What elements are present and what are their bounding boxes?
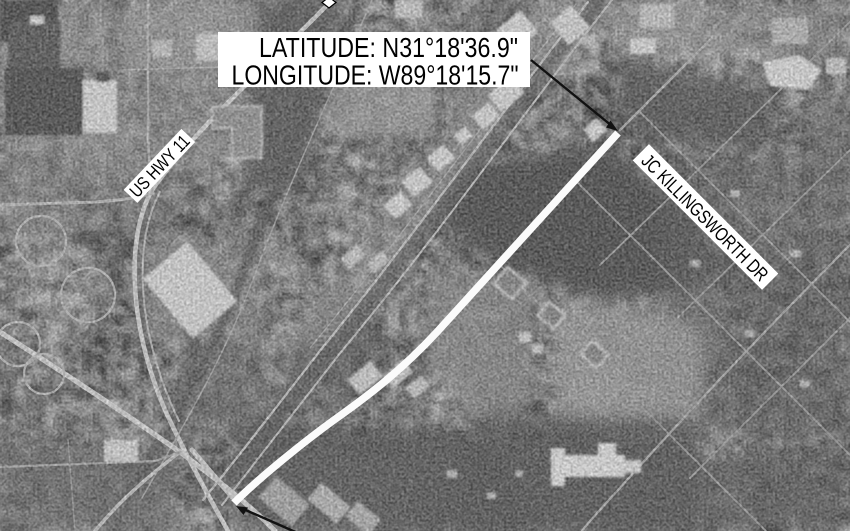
- svg-text:LATITUDE: N31°18'36.9": LATITUDE: N31°18'36.9": [259, 32, 518, 63]
- svg-text:LONGITUDE: W89°18'15.7": LONGITUDE: W89°18'15.7": [232, 60, 519, 91]
